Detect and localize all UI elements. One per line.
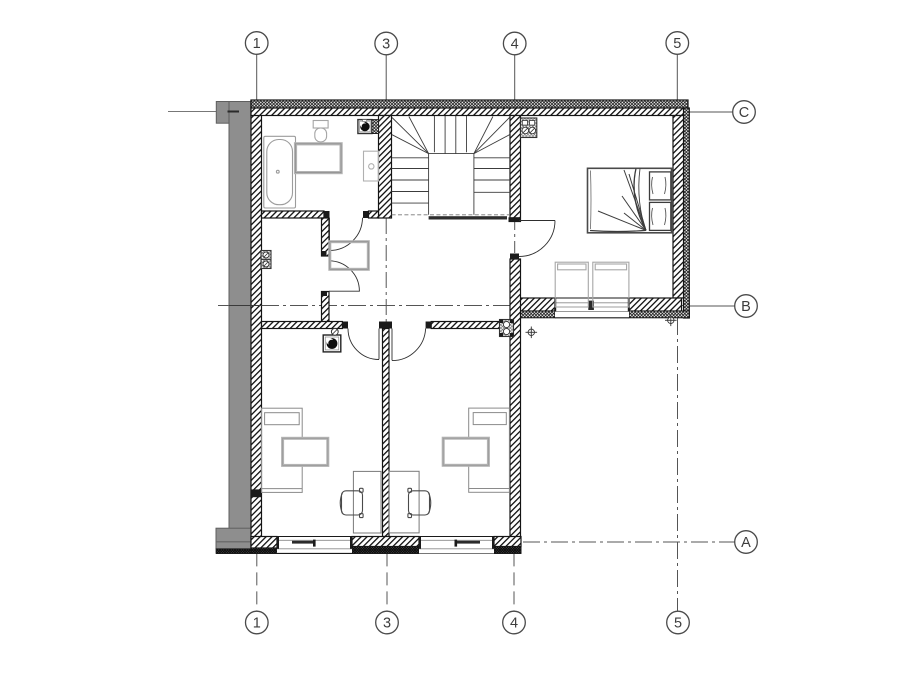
svg-text:A: A [741, 535, 751, 551]
svg-text:3: 3 [383, 616, 391, 632]
svg-text:5: 5 [673, 36, 681, 52]
svg-text:4: 4 [510, 616, 518, 632]
svg-text:4: 4 [511, 37, 519, 53]
svg-text:1: 1 [253, 36, 261, 52]
svg-text:B: B [741, 299, 751, 315]
svg-text:5: 5 [674, 616, 682, 632]
svg-text:C: C [739, 105, 749, 121]
svg-text:1: 1 [253, 616, 261, 632]
svg-text:3: 3 [382, 37, 390, 53]
